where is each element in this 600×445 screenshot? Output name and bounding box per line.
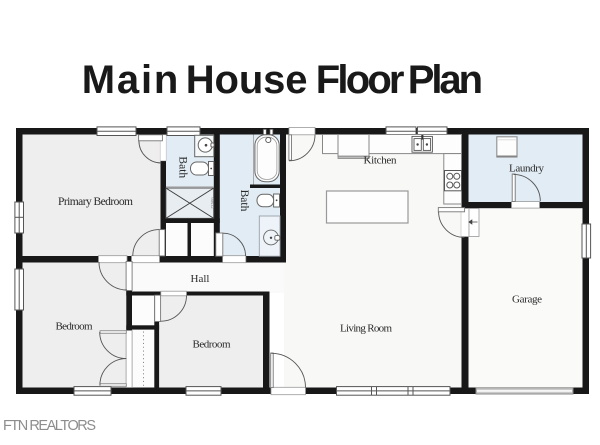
svg-text:FTN REALTORS: FTN REALTORS bbox=[3, 418, 96, 434]
svg-text:Garage: Garage bbox=[512, 294, 542, 306]
svg-text:Kitchen: Kitchen bbox=[364, 155, 398, 167]
svg-text:Laundry: Laundry bbox=[509, 163, 545, 175]
svg-text:Bedroom: Bedroom bbox=[56, 321, 93, 333]
svg-text:Plan: Plan bbox=[408, 58, 483, 102]
svg-text:60x32: 60x32 bbox=[210, 197, 215, 208]
svg-text:Primary Bedroom: Primary Bedroom bbox=[58, 196, 133, 208]
svg-text:Bath: Bath bbox=[177, 156, 189, 178]
svg-text:Bath: Bath bbox=[238, 190, 250, 212]
svg-text:Bedroom: Bedroom bbox=[193, 339, 231, 351]
svg-text:Hall: Hall bbox=[191, 273, 210, 285]
svg-text:Floor: Floor bbox=[316, 58, 405, 102]
svg-text:Living Room: Living Room bbox=[340, 323, 392, 335]
svg-text:Main: Main bbox=[82, 58, 179, 102]
svg-text:House: House bbox=[186, 58, 308, 102]
